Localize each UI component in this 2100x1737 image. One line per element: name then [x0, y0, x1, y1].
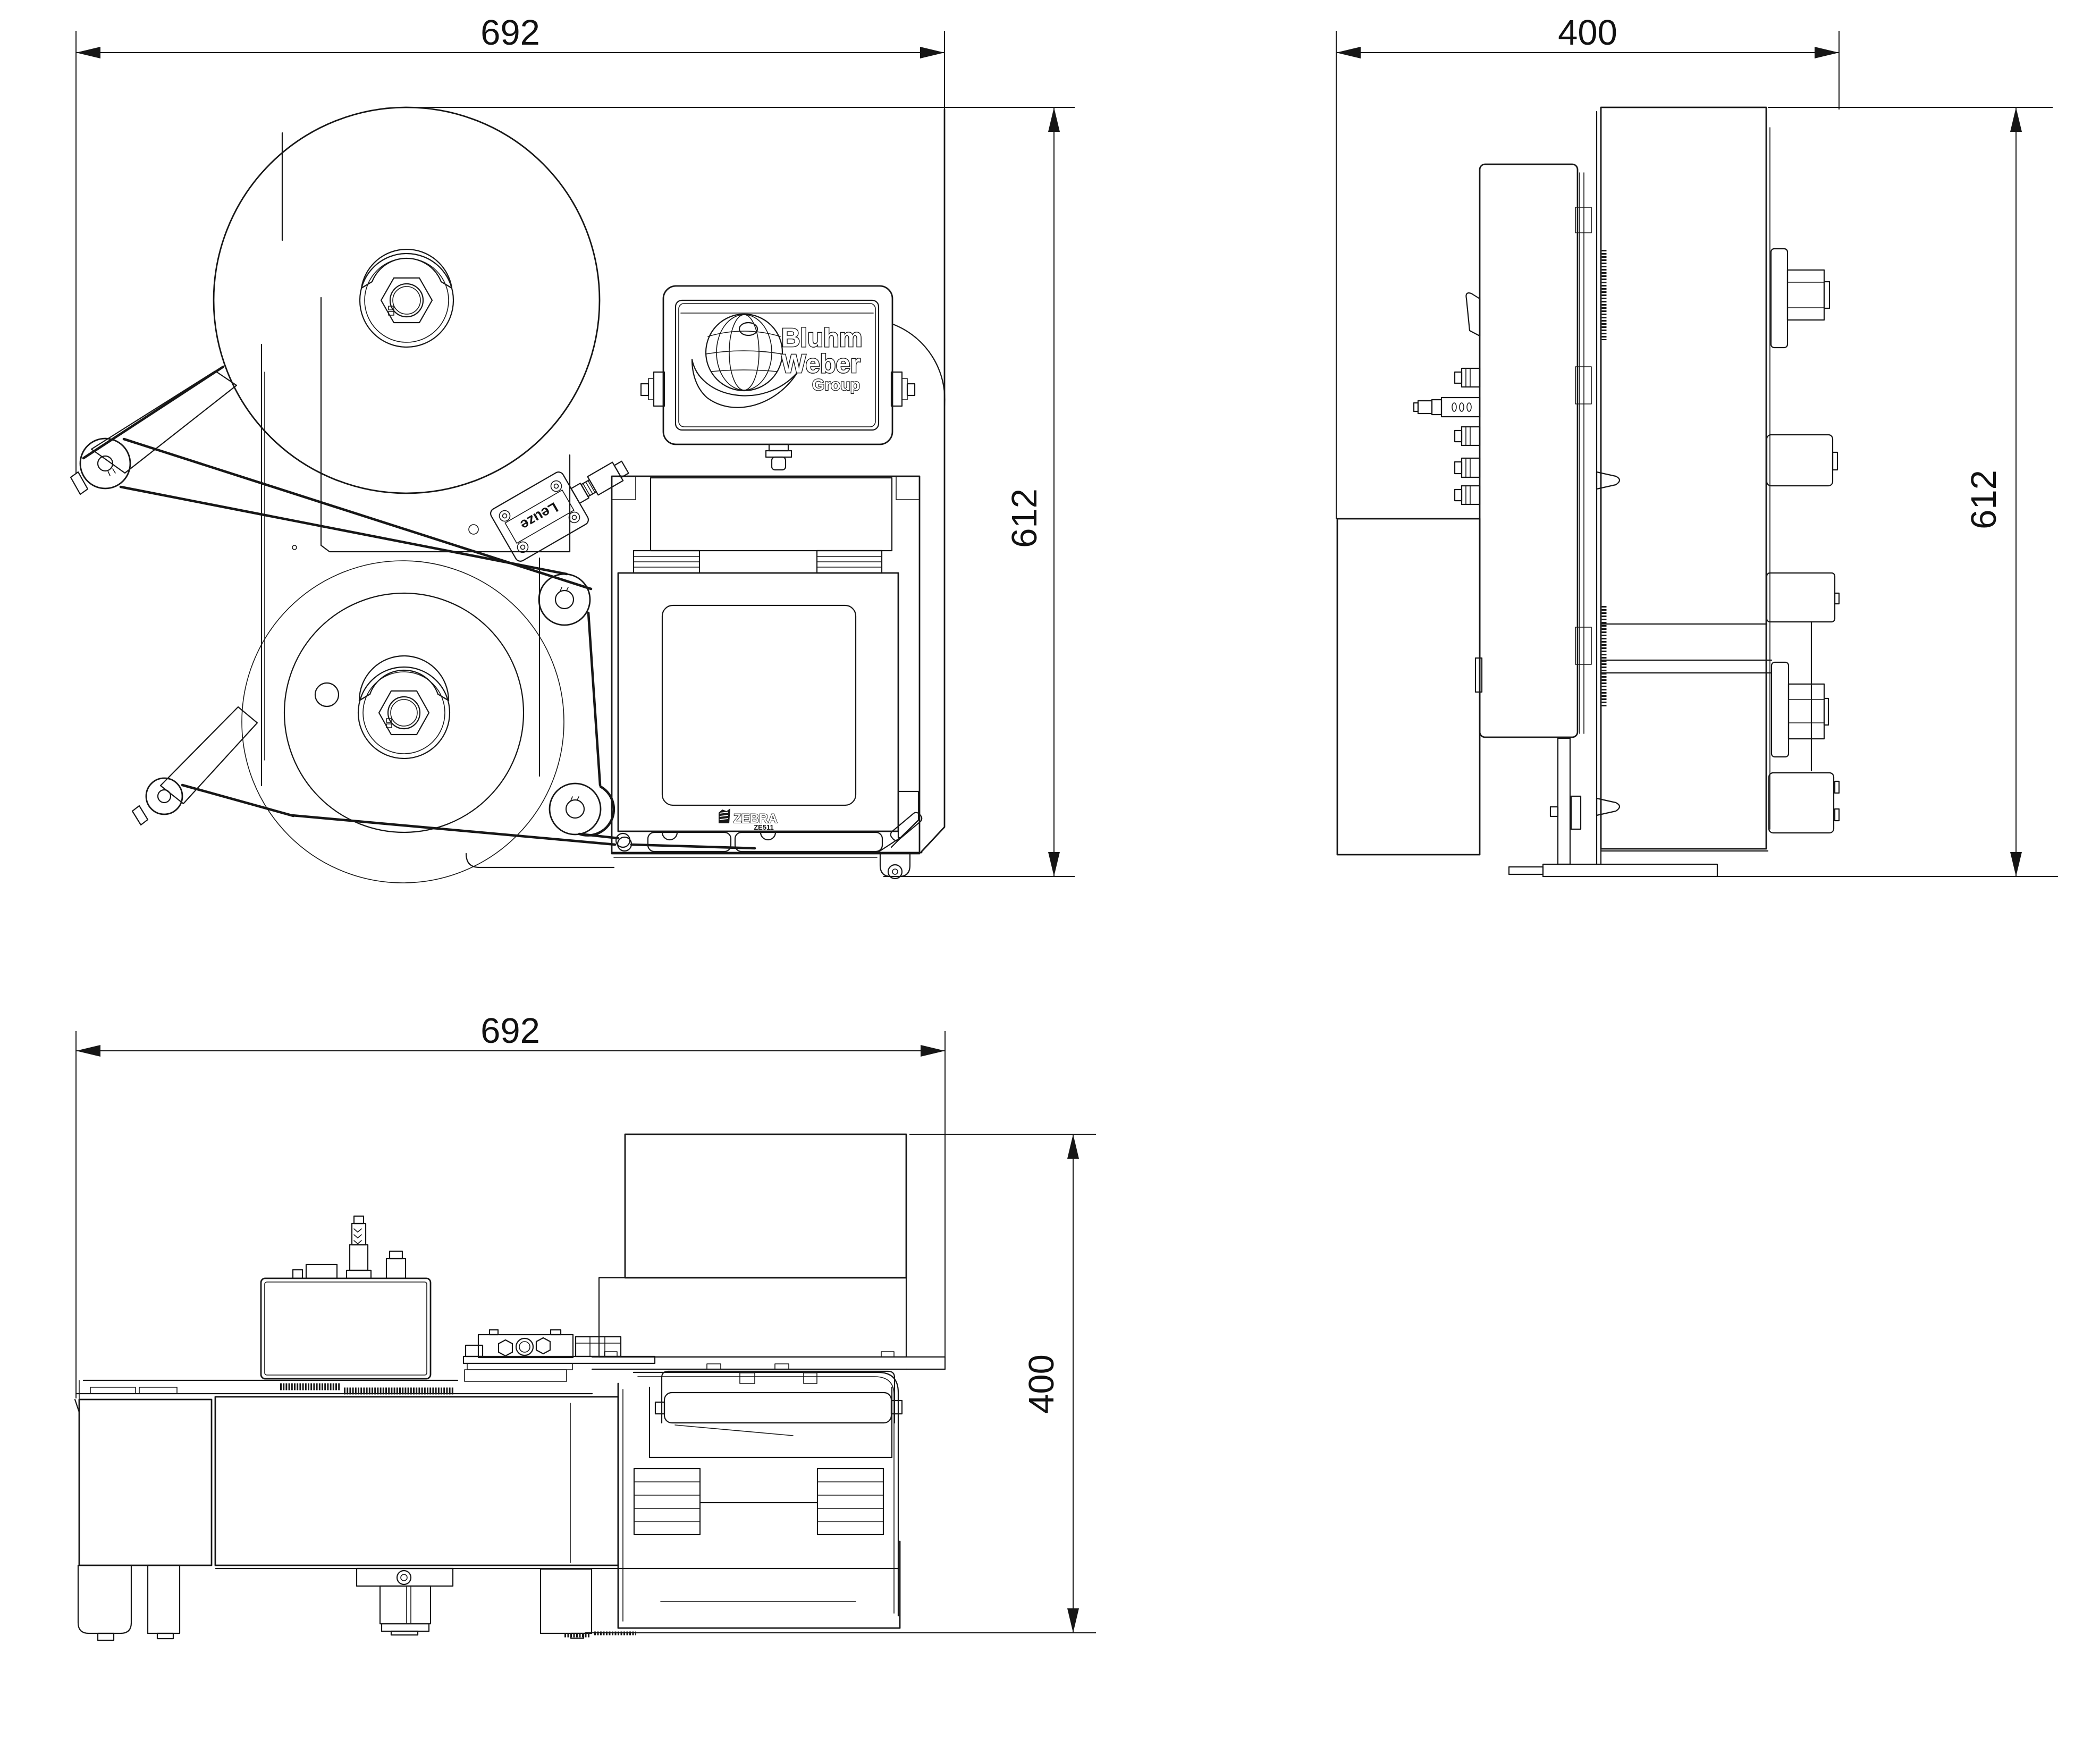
- svg-text:692: 692: [480, 13, 540, 53]
- svg-text:400: 400: [1022, 1354, 1061, 1414]
- svg-text:Weber: Weber: [781, 350, 861, 378]
- svg-text:ZE511: ZE511: [754, 823, 774, 831]
- svg-text:Group: Group: [812, 376, 860, 394]
- svg-text:400: 400: [1558, 13, 1617, 53]
- svg-text:612: 612: [1005, 488, 1044, 548]
- svg-text:692: 692: [480, 1011, 540, 1051]
- svg-text:612: 612: [1964, 470, 2004, 529]
- svg-text:Bluhm: Bluhm: [781, 324, 862, 352]
